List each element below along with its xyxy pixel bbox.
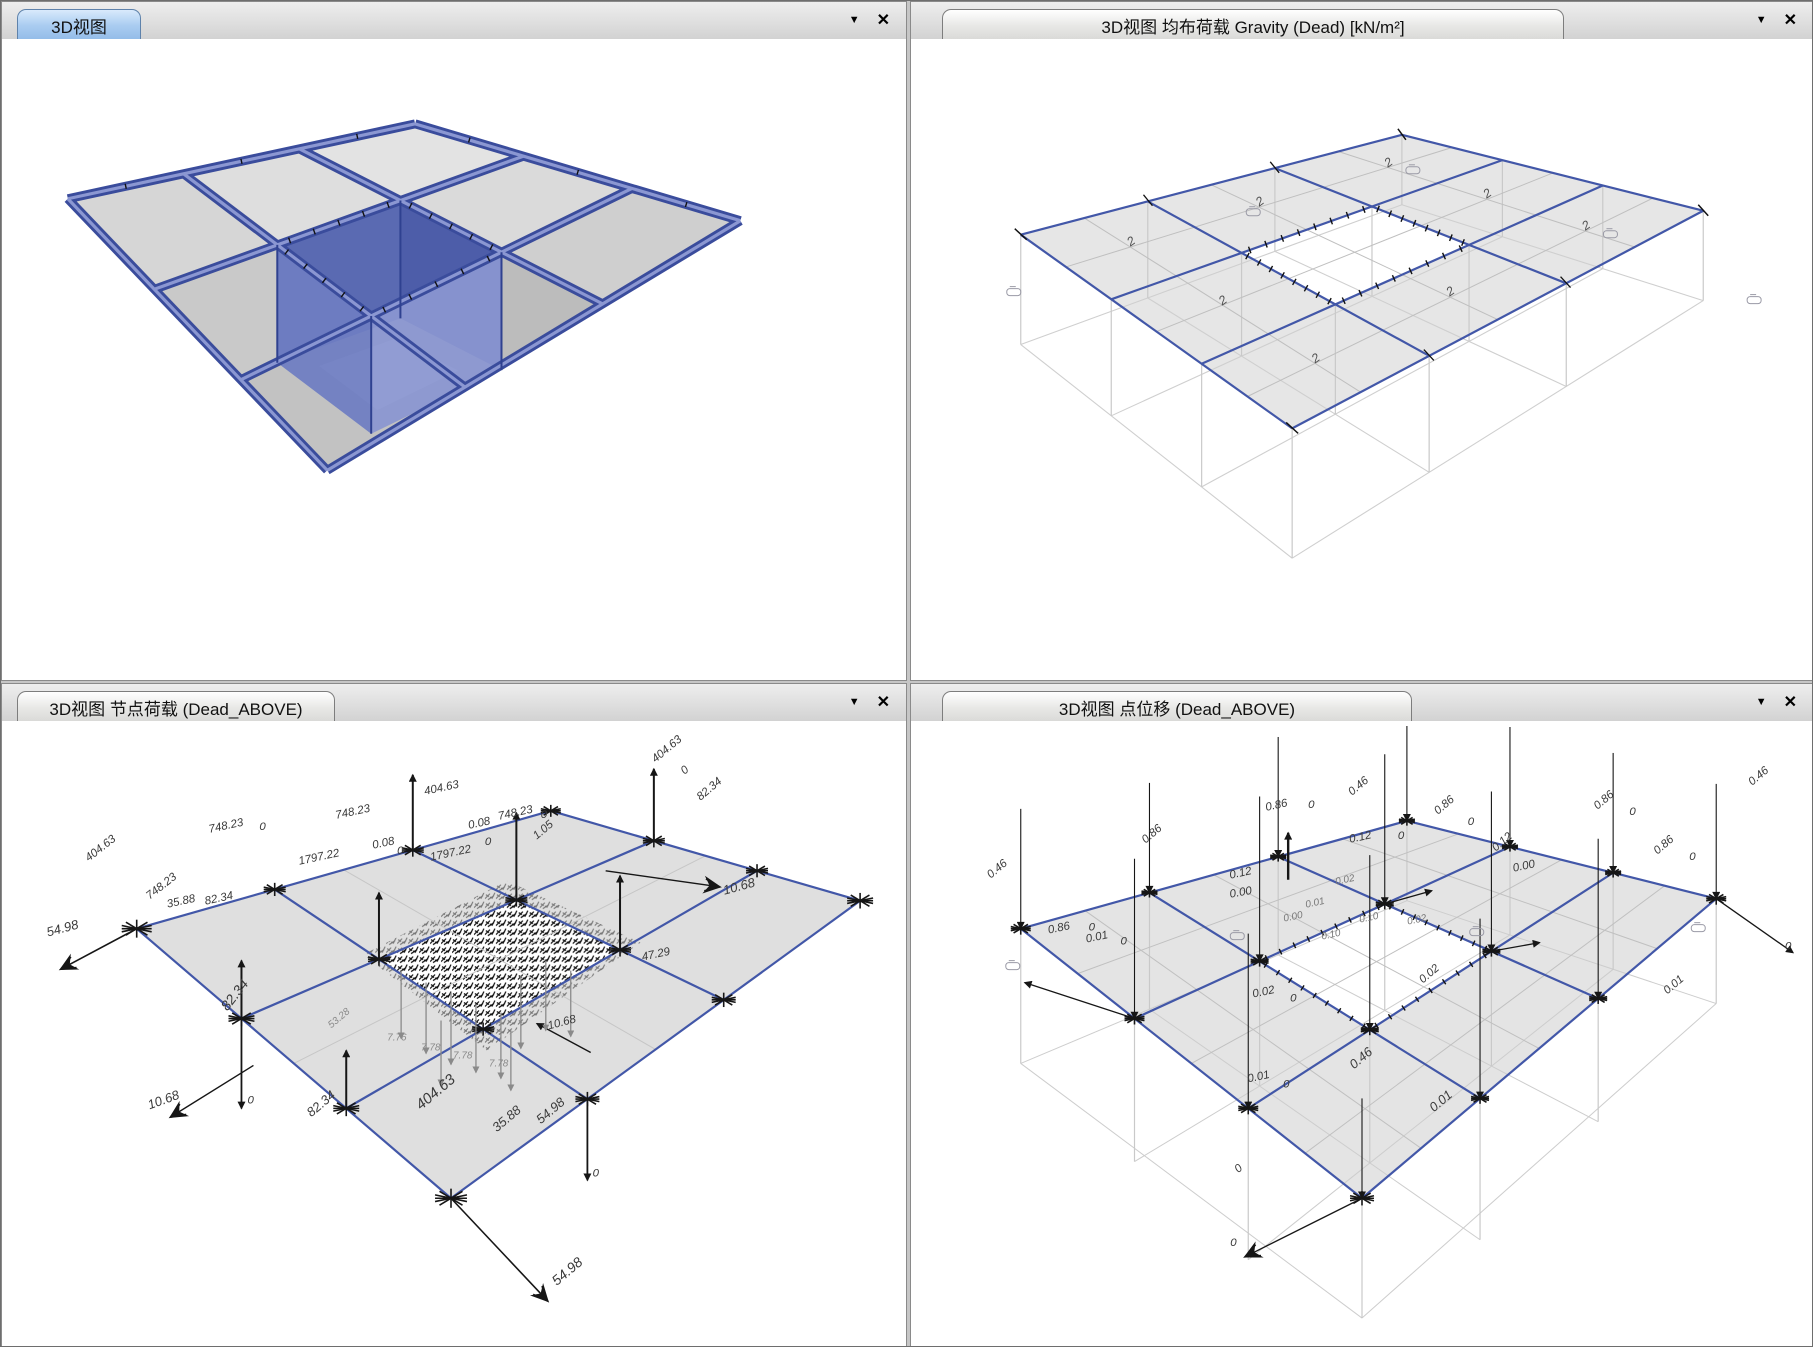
dropdown-arrow-icon[interactable]: ▼ (849, 15, 860, 26)
value-label: 0 (1232, 1162, 1245, 1176)
value-label: 0 (1290, 993, 1297, 1005)
value-label: 7.78 (489, 1058, 509, 1069)
value-label: 0 (1398, 830, 1405, 842)
value-label: 0 (1230, 1237, 1237, 1249)
value-label: 404.63 (650, 733, 685, 765)
value-label: 0.86 (1432, 793, 1457, 817)
close-icon[interactable]: ✕ (877, 13, 890, 29)
value-label: 0 (1121, 936, 1128, 948)
window-controls: ▼ ✕ (849, 684, 890, 721)
canvas-3d-rendered-model[interactable] (2, 39, 906, 680)
viewport-joint-load: 404.63748.2354.9835.8882.34748.2301797.2… (2, 721, 906, 1347)
value-label: 748.23 (208, 817, 245, 836)
value-label: 748.23 (334, 803, 371, 822)
value-label: 0 (1689, 851, 1696, 863)
app-window: 3D视图 ▼ ✕ 3D视图 均布荷载 Gravity (Dead) [kN/m²… (0, 0, 1813, 1347)
value-label: 1797.22 (297, 847, 341, 867)
value-label: 0 (247, 1094, 254, 1106)
tab-uniform-load[interactable]: 3D视图 均布荷载 Gravity (Dead) [kN/m²] (942, 9, 1564, 40)
window-controls: ▼ ✕ (849, 2, 890, 39)
value-label: 0 (1629, 806, 1636, 818)
value-label: 7.76 (387, 1032, 407, 1043)
tab-joint-load-label: 3D视图 节点荷载 (Dead_ABOVE) (49, 695, 302, 720)
panel-uniform-load-view: 3D视图 均布荷载 Gravity (Dead) [kN/m²] ▼ ✕ 222… (910, 1, 1813, 681)
canvas-joint-load-model[interactable]: 404.63748.2354.9835.8882.34748.2301797.2… (2, 721, 906, 1347)
close-icon[interactable]: ✕ (877, 695, 890, 711)
value-label: 0 (679, 764, 692, 778)
value-label: 0.46 (985, 857, 1010, 881)
value-label: 0.01 (1662, 973, 1687, 997)
value-label: 0.86 (1652, 833, 1677, 857)
value-label: 54.98 (45, 916, 81, 939)
tabbar-uniform-load: 3D视图 均布荷载 Gravity (Dead) [kN/m²] ▼ ✕ (911, 2, 1813, 40)
tab-3d-view-label: 3D视图 (51, 13, 107, 38)
value-label: 0 (1468, 816, 1475, 828)
vector-arrow (1716, 899, 1793, 953)
value-label: 7.78 (421, 1042, 441, 1053)
viewport-uniform-load: 22222222 (911, 39, 1813, 680)
close-icon[interactable]: ✕ (1784, 13, 1797, 29)
vector-arrow (62, 929, 137, 969)
load-stamp-icon (1007, 287, 1021, 296)
tabbar-3d-view: 3D视图 ▼ ✕ (2, 2, 906, 40)
value-label: 0.86 (1140, 822, 1165, 846)
value-label: 0 (1283, 1078, 1290, 1090)
panel-joint-load-view: 3D视图 节点荷载 (Dead_ABOVE) ▼ ✕ 404.63748.235… (1, 683, 907, 1347)
tabbar-joint-load: 3D视图 节点荷载 (Dead_ABOVE) ▼ ✕ (2, 684, 906, 722)
load-stamp-icon (1747, 295, 1761, 304)
panel-displacement-view: 3D视图 点位移 (Dead_ABOVE) ▼ ✕ 0.460.860.8600… (910, 683, 1813, 1347)
value-label: 0.46 (1346, 774, 1371, 798)
load-stamp-icon (1006, 961, 1020, 970)
dropdown-arrow-icon[interactable]: ▼ (1756, 15, 1767, 26)
value-label: 0 (259, 821, 266, 833)
value-label: 0.02 (1417, 962, 1442, 986)
viewport-displacement: 0.460.860.8600.460.1200.8600.120.000.860… (911, 721, 1813, 1347)
value-label: 0 (593, 1167, 600, 1179)
dropdown-arrow-icon[interactable]: ▼ (1756, 697, 1767, 708)
value-label: 0 (397, 845, 404, 857)
value-label: 0.86 (1264, 797, 1289, 814)
value-label: 7.78 (453, 1050, 473, 1061)
value-label: 0.46 (1746, 764, 1771, 788)
tab-uniform-load-label: 3D视图 均布荷载 Gravity (Dead) [kN/m²] (1101, 13, 1404, 38)
value-label: 0 (1308, 799, 1315, 811)
value-label: 82.34 (695, 776, 725, 804)
value-label: 54.98 (548, 1254, 585, 1289)
load-stamp-icon (1691, 923, 1705, 932)
canvas-displacement-model[interactable]: 0.460.860.8600.460.1200.8600.120.000.860… (911, 721, 1813, 1347)
viewport-3d-view (2, 39, 906, 680)
panel-3d-view: 3D视图 ▼ ✕ (1, 1, 907, 681)
vector-arrow (451, 1198, 547, 1300)
value-label: 10.68 (146, 1087, 182, 1112)
close-icon[interactable]: ✕ (1784, 695, 1797, 711)
dropdown-arrow-icon[interactable]: ▼ (849, 697, 860, 708)
vector-arrow (1246, 1198, 1362, 1256)
tab-3d-view[interactable]: 3D视图 (17, 9, 141, 40)
window-controls: ▼ ✕ (1756, 2, 1797, 39)
value-label: 0.08 (371, 835, 396, 852)
tab-displacement[interactable]: 3D视图 点位移 (Dead_ABOVE) (942, 691, 1412, 722)
tab-displacement-label: 3D视图 点位移 (Dead_ABOVE) (1059, 695, 1295, 720)
value-label: 0 (485, 836, 492, 848)
tab-joint-load[interactable]: 3D视图 节点荷载 (Dead_ABOVE) (17, 691, 335, 722)
canvas-uniform-load-model[interactable]: 22222222 (911, 39, 1813, 680)
tabbar-displacement: 3D视图 点位移 (Dead_ABOVE) ▼ ✕ (911, 684, 1813, 722)
window-controls: ▼ ✕ (1756, 684, 1797, 721)
value-label: 35.88 (166, 893, 197, 911)
value-label: 404.63 (83, 833, 119, 864)
value-label: 404.63 (423, 779, 460, 798)
value-label: 0 (1785, 941, 1792, 953)
